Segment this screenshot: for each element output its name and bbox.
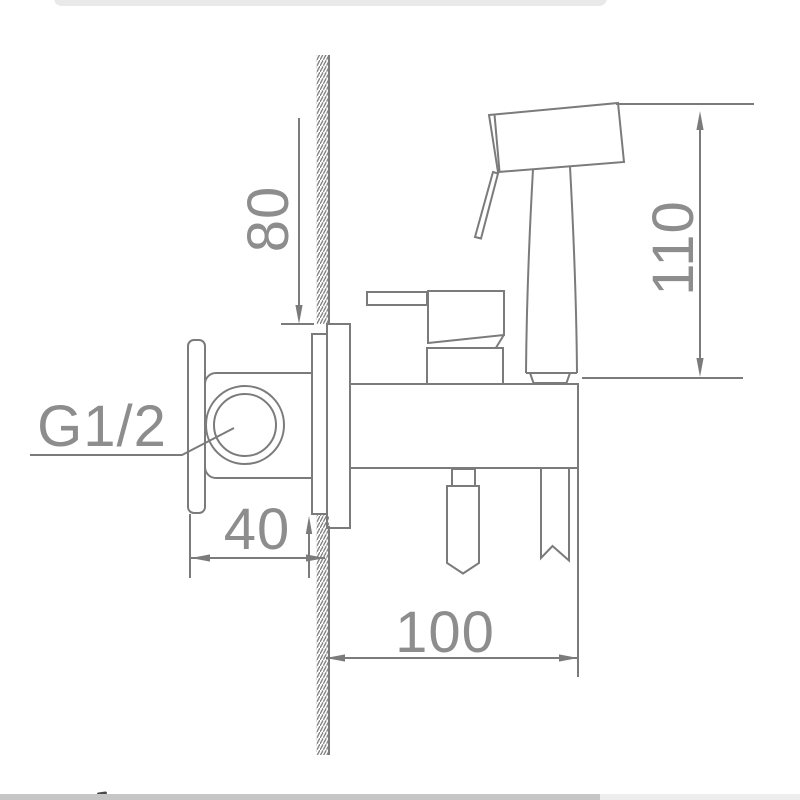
- thread-port-inner: [214, 394, 276, 456]
- handle-lever: [367, 292, 427, 305]
- arrow-left-icon: [191, 554, 210, 561]
- valve-body: [350, 384, 578, 468]
- arrow-down-icon: [295, 305, 302, 324]
- arrow-down-icon: [696, 358, 703, 377]
- sprayer-handle: [526, 170, 533, 374]
- arrow-up-icon: [306, 516, 312, 534]
- thread-label: G1/2: [37, 394, 167, 459]
- mixer-handle: [367, 291, 504, 384]
- sprayer-head: [489, 103, 624, 172]
- dim-label-110: 110: [641, 200, 706, 295]
- horizontal-scrollbar[interactable]: [0, 794, 800, 800]
- inlet-fitting: [188, 340, 312, 513]
- scrollbar-thumb[interactable]: [0, 794, 600, 800]
- dimension-110: 110: [582, 104, 754, 378]
- dim-label-80: 80: [236, 186, 301, 253]
- technical-drawing: 80 110 40 100 G1/2: [0, 0, 800, 800]
- wall-plates: [312, 324, 350, 528]
- thread-port-outer: [206, 386, 284, 464]
- in-wall-plate: [312, 334, 327, 514]
- hose-strap: [541, 469, 569, 561]
- sprayer-trigger: [475, 172, 498, 239]
- hand-sprayer: [475, 103, 624, 383]
- dim-label-100: 100: [395, 600, 495, 665]
- arrow-right-icon: [559, 654, 578, 661]
- inlet-flange: [188, 340, 205, 513]
- sprayer-outlet: [530, 373, 570, 383]
- dimension-40: 40: [190, 497, 325, 578]
- escutcheon-plate: [327, 324, 350, 528]
- dim-label-40: 40: [224, 497, 291, 562]
- dimension-80: 80: [236, 118, 314, 324]
- arrow-up-icon: [696, 111, 703, 130]
- check-valve: [447, 469, 479, 574]
- cartridge-sleeve: [427, 348, 503, 384]
- thread-callout: G1/2: [30, 394, 234, 459]
